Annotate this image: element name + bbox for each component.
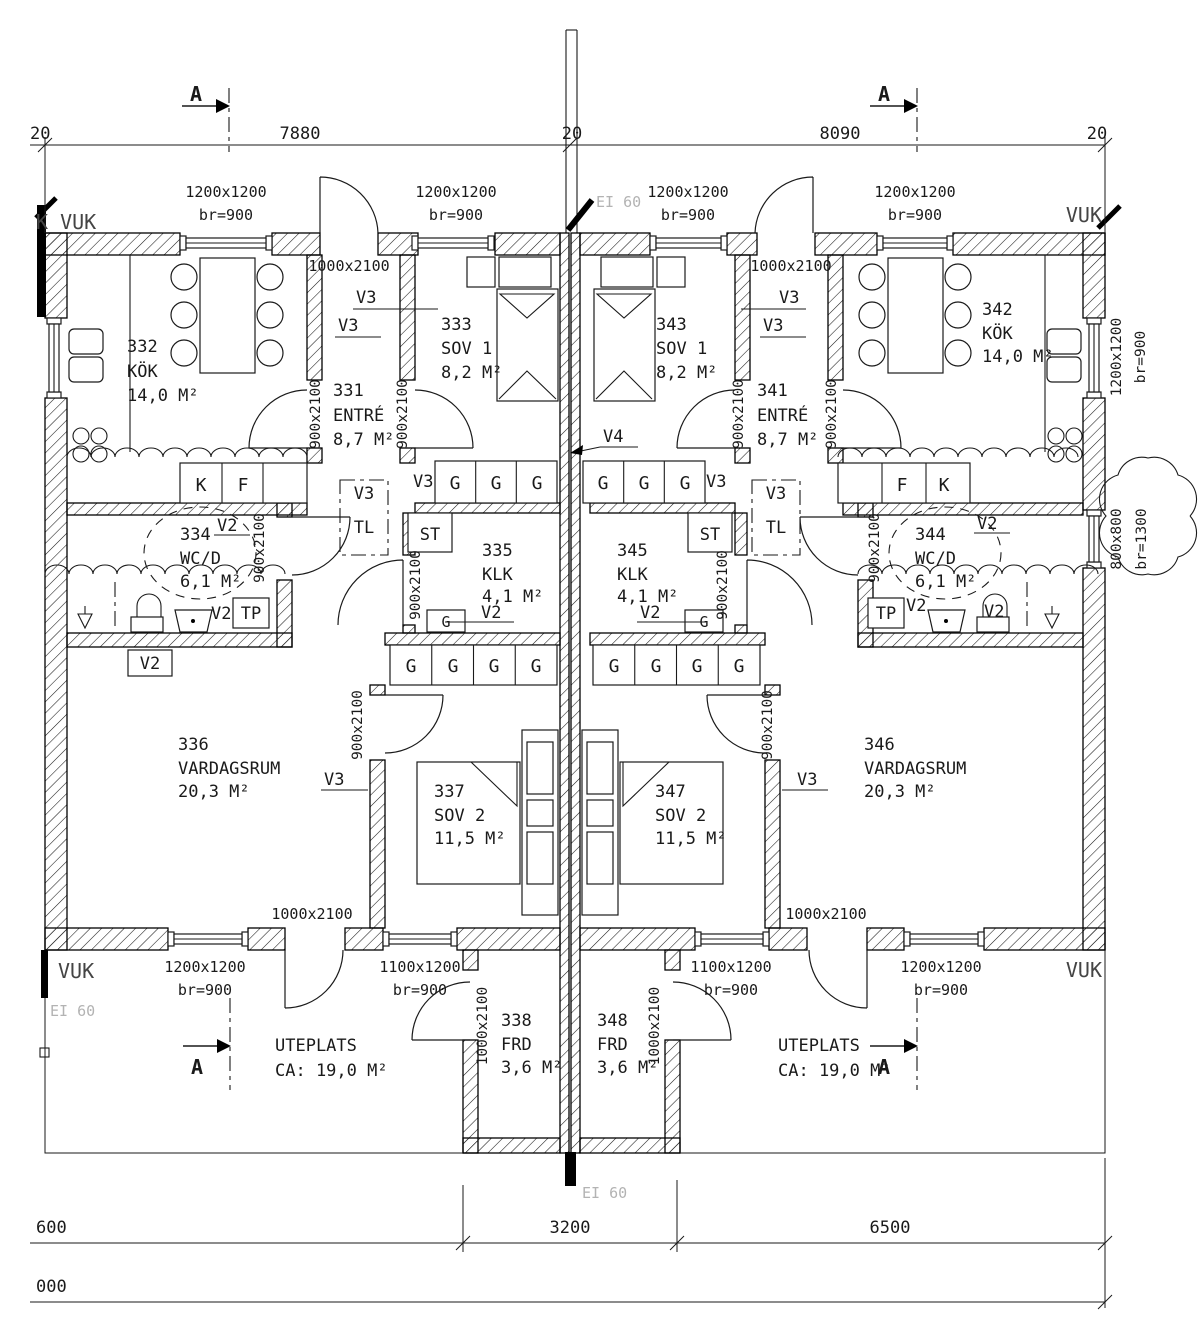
door-label-kok-332: 900x2100 [308, 379, 324, 449]
kitchen-fixtures-332 [69, 255, 130, 462]
tag-v3-2r: V3 [763, 316, 783, 336]
dining-set-332 [171, 258, 283, 373]
tag-f-l: F [238, 475, 249, 496]
section-a-bottom-left: A [191, 1055, 203, 1079]
tag-v3-row-r: V3 [706, 472, 726, 492]
central-fire-wall [560, 30, 580, 1153]
tag-v3-vard-r: V3 [797, 770, 817, 790]
room-342-name: KÖK [982, 322, 1013, 344]
room-346-name: VARDAGSRUM [864, 759, 966, 779]
win-label-3: 1200x1200 [647, 183, 728, 201]
tag-g-5: G [639, 473, 650, 494]
win-label-8: 1200x1200 [900, 958, 981, 976]
tag-g-4: G [598, 473, 609, 494]
dim-7880: 7880 [280, 124, 321, 144]
floor-drain-344 [1045, 606, 1059, 628]
tag-g-6: G [680, 473, 691, 494]
dim-000: 000 [36, 1277, 67, 1297]
room-338-area: 3,6 M² [501, 1058, 562, 1078]
tag-v2-wcd-r-mid: V2 [906, 596, 926, 616]
dim-top-mid-20: 20 [562, 124, 582, 144]
room-335-num: 335 [482, 541, 513, 561]
room-334-num: 334 [180, 525, 211, 545]
win-label-6: 1100x1200 [379, 958, 460, 976]
tag-tp-l: TP [241, 604, 261, 624]
tag-v3-1l: V3 [356, 288, 376, 308]
tag-g-11: G [609, 656, 620, 677]
tag-st-l: ST [420, 525, 440, 545]
room-333-name: SOV 1 [441, 339, 492, 359]
tag-v3-tl-l: V3 [354, 484, 374, 504]
room-335-name: KLK [482, 565, 513, 585]
win-label-7b: br=900 [704, 981, 758, 999]
room-338-name: FRD [501, 1035, 532, 1055]
window-kok-342 [877, 236, 953, 250]
room-341-num: 341 [757, 381, 788, 401]
win-label-right-kok: 1200x1200 [1109, 318, 1125, 397]
win-label-7: 1100x1200 [690, 958, 771, 976]
room-341-area: 8,7 M² [757, 430, 818, 450]
label-vuk-bottom-left: VUK [58, 959, 94, 983]
room-345-num: 345 [617, 541, 648, 561]
door-label-sov2-337: 900x2100 [350, 690, 366, 760]
window-sov1-333 [412, 236, 494, 250]
label-vuk-top-right: VUK [1066, 203, 1102, 227]
tag-g-klk-r: G [699, 613, 708, 631]
door-label-kok-342: 900x2100 [824, 379, 840, 449]
tag-g-12: G [651, 656, 662, 677]
door-label-sov1-343: 900x2100 [731, 379, 747, 449]
uteplats-left-name: UTEPLATS [275, 1036, 357, 1056]
tag-k-r: K [939, 475, 950, 496]
label-ei60-bottom: EI 60 [582, 1184, 627, 1202]
room-337-name: SOV 2 [434, 806, 485, 826]
room-331-area: 8,7 M² [333, 430, 394, 450]
door-label-entry-341: 1000x2100 [750, 257, 831, 275]
room-348-num: 348 [597, 1011, 628, 1031]
door-label-sov1-333: 900x2100 [395, 379, 411, 449]
room-334-area: 6,1 M² [180, 572, 241, 592]
tag-v3-1r: V3 [779, 288, 799, 308]
uteplats-right-name: UTEPLATS [778, 1036, 860, 1056]
room-342-num: 342 [982, 300, 1013, 320]
tag-v2-wcd-r-2: V2 [984, 602, 1004, 622]
tag-g-2: G [491, 473, 502, 494]
floor-plan-drawing: 20 7880 20 8090 20 600 3200 6500 000 A A… [0, 0, 1200, 1342]
win-label-right-kok-b: br=900 [1133, 331, 1149, 383]
window-sov2-347 [695, 932, 769, 946]
tag-v3-2l: V3 [338, 316, 358, 336]
room-342-area: 14,0 M² [982, 347, 1054, 367]
door-label-patio-346: 1000x2100 [785, 905, 866, 923]
room-347-area: 11,5 M² [655, 829, 727, 849]
room-344-name: WC/D [915, 549, 956, 569]
room-348-area: 3,6 M² [597, 1058, 658, 1078]
window-right-kok [1087, 318, 1101, 398]
door-label-patio-336: 1000x2100 [271, 905, 352, 923]
tag-g-3: G [532, 473, 543, 494]
tag-v3-vard-l: V3 [324, 770, 344, 790]
tag-g-13: G [692, 656, 703, 677]
sink-344 [928, 610, 965, 632]
room-337-area: 11,5 M² [434, 829, 506, 849]
section-a-top-left: A [190, 82, 202, 106]
toilet-334 [131, 594, 163, 632]
room-348-name: FRD [597, 1035, 628, 1055]
label-ei60-left: EI 60 [50, 1002, 95, 1020]
win-label-right-wcd: 800x800 [1109, 508, 1125, 569]
room-343-num: 343 [656, 315, 687, 335]
room-347-name: SOV 2 [655, 806, 706, 826]
tag-g-10: G [531, 656, 542, 677]
room-345-name: KLK [617, 565, 648, 585]
tag-tl-r: TL [766, 518, 786, 538]
door-label-klk-335: 900x2100 [408, 550, 424, 620]
tag-k-l: K [196, 475, 207, 496]
win-label-5b: br=900 [178, 981, 232, 999]
dim-3200: 3200 [550, 1218, 591, 1238]
floor-drain-334 [78, 606, 92, 628]
room-332-name: KÖK [127, 360, 158, 382]
room-331-num: 331 [333, 381, 364, 401]
window-sov2-337 [383, 932, 457, 946]
room-343-name: SOV 1 [656, 339, 707, 359]
room-343-area: 8,2 M² [656, 363, 717, 383]
tag-g-klk-l: G [441, 613, 450, 631]
tag-v3-row-l: V3 [413, 472, 433, 492]
dim-6500: 6500 [870, 1218, 911, 1238]
room-344-num: 344 [915, 525, 946, 545]
tag-v2-wcd-r-top: V2 [977, 514, 997, 534]
tag-st-r: ST [700, 525, 720, 545]
room-337-num: 337 [434, 782, 465, 802]
tag-g-14: G [734, 656, 745, 677]
door-label-frd-338: 1000x2100 [475, 987, 491, 1066]
window-vardagsrum-336 [168, 932, 248, 946]
dim-8090: 8090 [820, 124, 861, 144]
room-336-area: 20,3 M² [178, 782, 250, 802]
win-label-5: 1200x1200 [164, 958, 245, 976]
room-347-num: 347 [655, 782, 686, 802]
room-346-num: 346 [864, 735, 895, 755]
tag-v4: V4 [603, 427, 623, 447]
win-label-4b: br=900 [888, 206, 942, 224]
label-vuk-bottom-right: VUK [1066, 958, 1102, 982]
uteplats-left-area: CA: 19,0 M² [275, 1061, 388, 1081]
dining-set-342 [859, 258, 971, 373]
room-334-name: WC/D [180, 549, 221, 569]
section-a-top-right: A [878, 82, 890, 106]
win-label-right-wcd-b: br=1300 [1134, 508, 1150, 569]
room-336-name: VARDAGSRUM [178, 759, 280, 779]
tag-v2-vard-l: V2 [140, 654, 160, 674]
door-label-wcd-334: 900x2100 [252, 513, 268, 583]
labels: 20 7880 20 8090 20 600 3200 6500 000 A A… [30, 82, 1150, 1297]
room-331-name: ENTRÉ [333, 404, 384, 426]
tag-v2-klk-r: V2 [640, 603, 660, 623]
room-332-area: 14,0 M² [127, 386, 199, 406]
floor-plan-sheet: 20 7880 20 8090 20 600 3200 6500 000 A A… [0, 0, 1200, 1342]
room-338-num: 338 [501, 1011, 532, 1031]
window-sov1-343 [650, 236, 727, 250]
win-label-1b: br=900 [199, 206, 253, 224]
win-label-4: 1200x1200 [874, 183, 955, 201]
door-label-sov2-347: 900x2100 [760, 690, 776, 760]
win-label-8b: br=900 [914, 981, 968, 999]
tag-f-r: F [897, 475, 908, 496]
tag-g-1: G [450, 473, 461, 494]
label-k-vuk: K VUK [36, 210, 96, 234]
window-left-wall [47, 318, 61, 398]
win-label-2b: br=900 [429, 206, 483, 224]
tag-g-9: G [489, 656, 500, 677]
room-344-area: 6,1 M² [915, 572, 976, 592]
dim-top-left-20: 20 [30, 124, 50, 144]
room-332-num: 332 [127, 337, 158, 357]
dim-600: 600 [36, 1218, 67, 1238]
uteplats-right-area: CA: 19,0 M² [778, 1061, 891, 1081]
tag-v2-wcd-l-top: V2 [217, 516, 237, 536]
room-333-num: 333 [441, 315, 472, 335]
sink-334 [175, 610, 212, 632]
room-346-area: 20,3 M² [864, 782, 936, 802]
label-ei60-top: EI 60 [596, 193, 641, 211]
tag-tp-r: TP [876, 604, 896, 624]
win-label-3b: br=900 [661, 206, 715, 224]
window-kok-332 [180, 236, 272, 250]
tag-g-7: G [406, 656, 417, 677]
window-right-wcd [1087, 510, 1101, 568]
win-label-1: 1200x1200 [185, 183, 266, 201]
door-label-klk-345: 900x2100 [715, 550, 731, 620]
door-label-wcd-344: 900x2100 [867, 513, 883, 583]
door-label-entry-331: 1000x2100 [308, 257, 389, 275]
tag-tl-l: TL [354, 518, 374, 538]
win-label-2: 1200x1200 [415, 183, 496, 201]
window-vardagsrum-346 [904, 932, 984, 946]
tag-v3-tl-r: V3 [766, 484, 786, 504]
win-label-6b: br=900 [393, 981, 447, 999]
tag-v2-klk-l: V2 [481, 603, 501, 623]
room-336-num: 336 [178, 735, 209, 755]
room-341-name: ENTRÉ [757, 404, 808, 426]
tag-v2-wcd-l-mid: V2 [211, 604, 231, 624]
tag-g-8: G [448, 656, 459, 677]
room-333-area: 8,2 M² [441, 363, 502, 383]
door-label-frd-348: 1000x2100 [647, 987, 663, 1066]
dim-top-right-20: 20 [1087, 124, 1107, 144]
